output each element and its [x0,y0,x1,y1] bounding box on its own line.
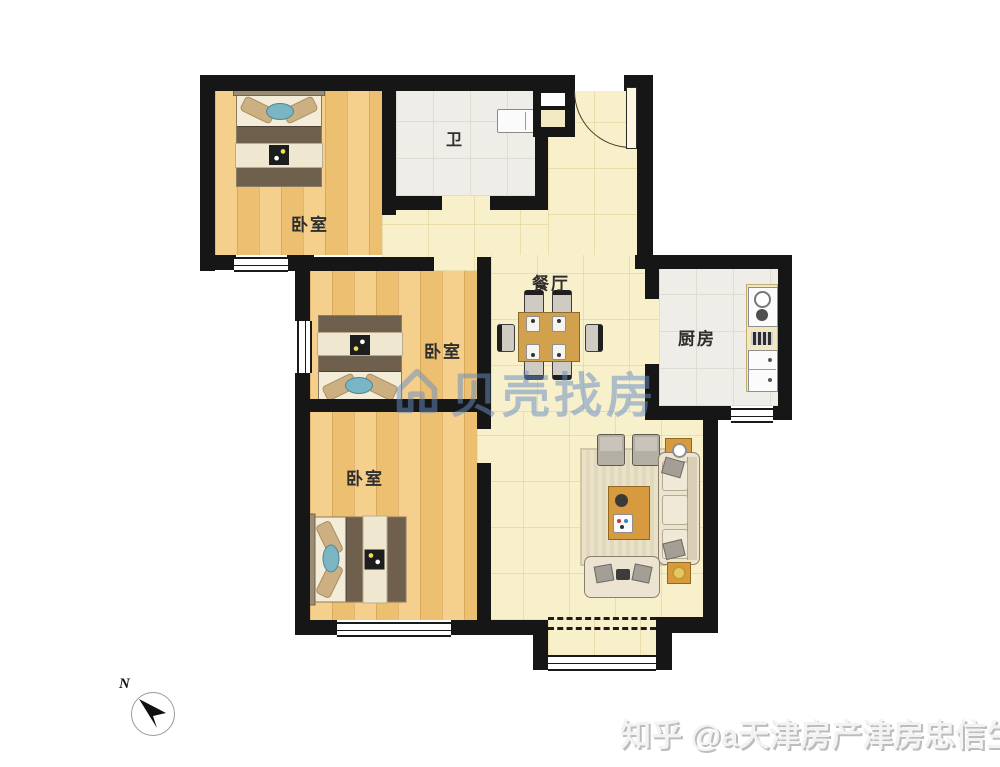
room-label-bedroom-middle: 卧室 [424,338,462,363]
window [297,321,312,373]
round-cushion [345,377,373,394]
ottoman [597,434,625,466]
tray-icon [613,514,633,533]
dining-chair [585,324,603,352]
window [234,257,288,272]
cabinet-handle [768,358,772,362]
balcony-boundary-dashes [548,617,656,630]
teapot-icon [615,494,628,507]
kitchen-cabinet [748,350,778,392]
wall-segment [477,410,491,429]
bathroom-fixture [497,109,535,133]
wall-segment [295,410,310,635]
lamp-icon [672,566,686,580]
wall-segment [635,255,792,269]
cup-icon [672,443,687,458]
dining-chair [497,324,515,352]
stove-burner-icon [756,309,768,321]
bed-top-bedroom [236,92,322,187]
bed-decor-pillow [350,335,370,355]
window [337,622,451,637]
throw-pillow [594,564,615,584]
duct-shaft [541,93,565,106]
room-label-dining: 餐厅 [532,270,570,295]
tray-item [624,519,628,523]
wall-segment [477,257,491,411]
duct-shaft [541,110,565,127]
place-setting [552,316,566,332]
sink-icon [754,291,771,308]
wall-segment [295,257,434,271]
sofa-backrest [687,457,697,560]
bed-middle-bedroom [318,315,402,405]
sofa-cushion [662,495,688,525]
wall-segment [200,255,236,270]
place-setting [526,316,540,332]
wall-segment [295,399,491,412]
place-setting [552,344,566,360]
compass-circle [131,692,175,736]
cabinet-handle [768,378,772,382]
room-label-kitchen: 厨房 [678,325,716,350]
loveseat [584,556,660,598]
wall-segment [490,196,548,210]
round-cushion [323,545,340,573]
wall-segment [382,75,396,215]
wall-segment [200,75,215,271]
wall-segment [533,620,548,670]
tray-item [617,519,621,523]
room-label-bedroom-top: 卧室 [291,211,329,236]
north-label: N [119,676,130,693]
room-label-bathroom: 卫 [446,126,464,150]
wall-segment [637,75,653,269]
place-setting [526,344,540,360]
cabinet-divider [748,369,776,370]
wall-segment [382,196,442,210]
wall-segment [645,406,731,420]
vent-grill-icon [751,332,773,345]
round-cushion [266,103,294,120]
floor-plan-canvas: 卧室 卫 餐厅 厨房 卧室 卧室 贝壳找房 N 知乎 @a天津房产津房忠信生 [0,0,1000,767]
wall-segment [535,91,548,197]
wall-segment [778,266,792,420]
wall-segment [773,406,792,420]
credit-watermark: 知乎 @a天津房产津房忠信生 [620,710,1000,755]
floor-bathroom [396,91,535,196]
window [731,408,773,423]
bed-decor-pillow [269,145,289,165]
wall-segment [295,620,337,635]
north-arrow-icon [132,693,174,735]
seat-item [616,569,630,580]
bed-bottom-bedroom [312,517,407,603]
wall-segment [451,620,534,635]
wall-segment [477,463,491,635]
wall-segment [703,420,718,624]
ottoman [632,434,660,466]
room-label-bedroom-bottom: 卧室 [346,465,384,490]
tray-item [620,525,624,529]
throw-pillow [631,563,652,583]
window [548,655,656,671]
entry-door-leaf [626,87,637,149]
wall-segment [645,269,659,299]
sofa [658,452,700,565]
bed-decor-pillow [365,550,385,570]
